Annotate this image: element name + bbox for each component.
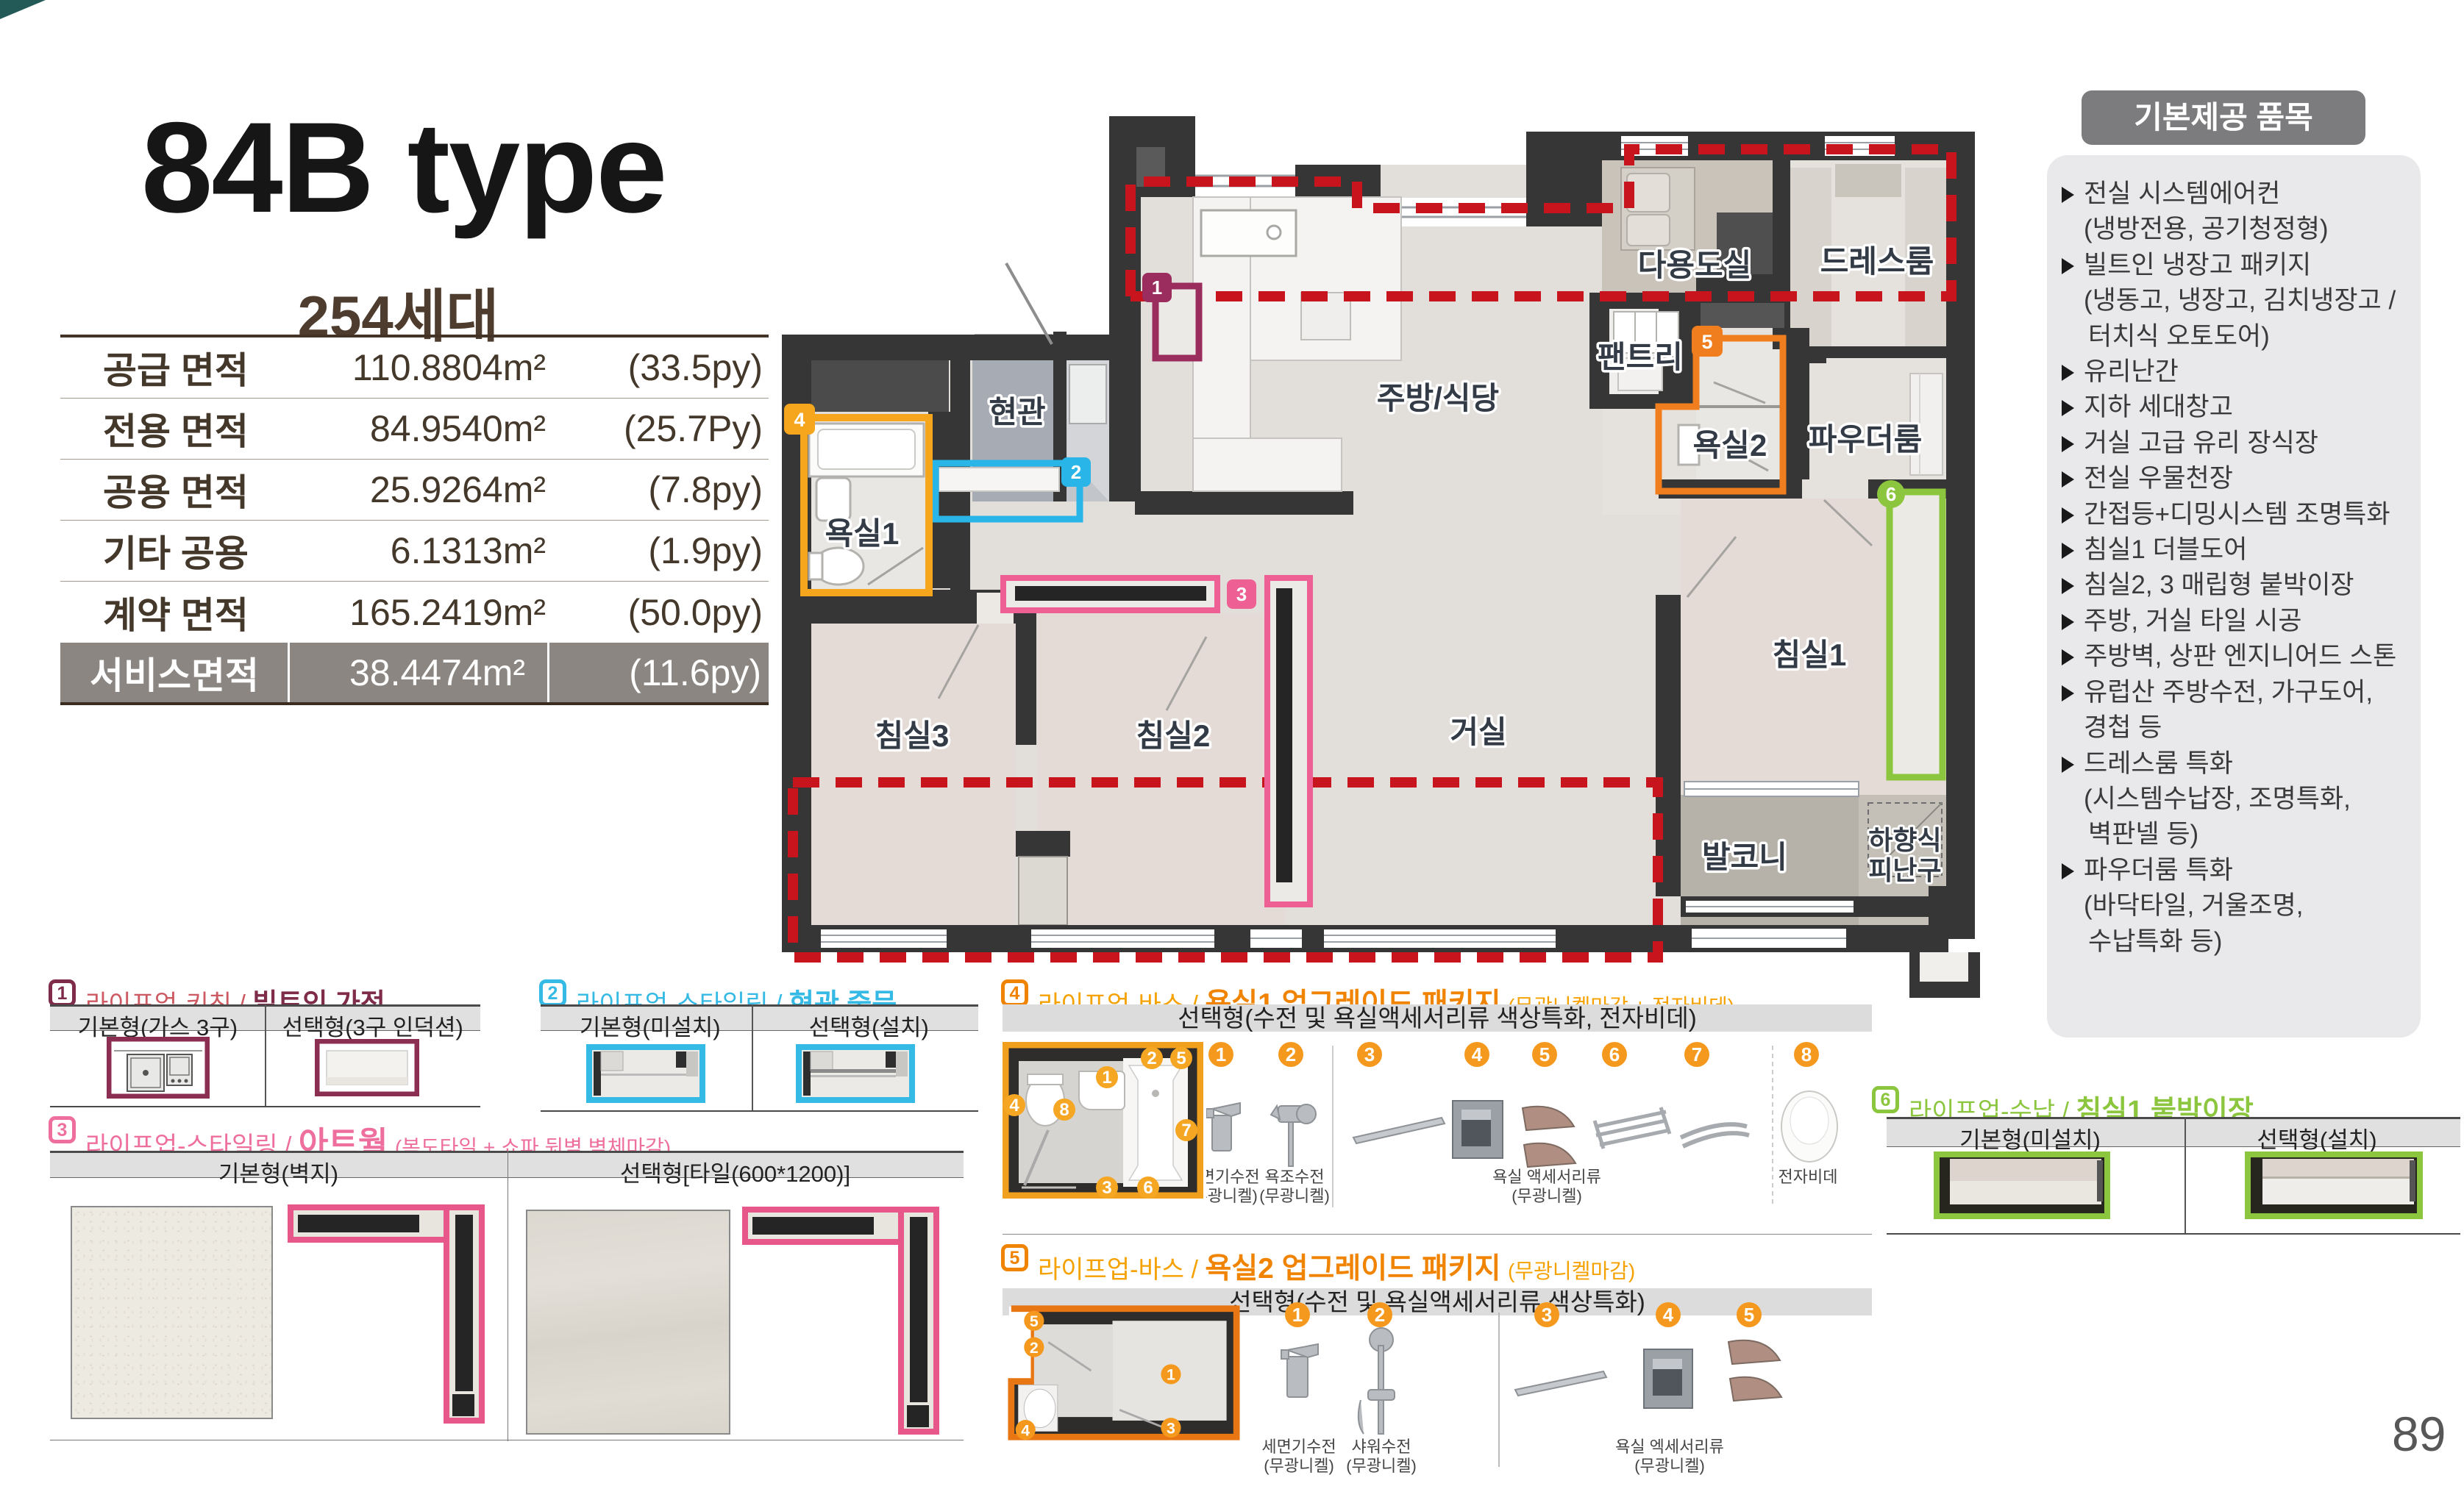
svg-text:세면기수전: 세면기수전 — [1261, 1438, 1336, 1456]
svg-text:침실3: 침실3 — [875, 718, 950, 753]
svg-text:(무광니켈): (무광니켈) — [1511, 1187, 1582, 1205]
svg-text:욕실 엑세서리류: 욕실 엑세서리류 — [1615, 1438, 1724, 1456]
svg-text:세면기수전: 세면기수전 — [1206, 1168, 1260, 1186]
svg-text:6: 6 — [1609, 1043, 1620, 1065]
svg-text:파우더룸: 파우더룸 — [1809, 422, 1923, 457]
svg-text:4: 4 — [1021, 1421, 1030, 1439]
svg-text:(무광니켈): (무광니켈) — [1264, 1457, 1334, 1475]
svg-text:(무광니켈): (무광니켈) — [1634, 1457, 1705, 1475]
svg-text:침실1: 침실1 — [1773, 638, 1847, 672]
svg-text:4: 4 — [1663, 1304, 1674, 1326]
svg-text:전자비데: 전자비데 — [1778, 1168, 1838, 1186]
svg-text:주방/식당: 주방/식당 — [1377, 381, 1499, 415]
svg-text:침실2: 침실2 — [1136, 718, 1211, 753]
svg-text:3: 3 — [1102, 1178, 1111, 1198]
svg-text:3: 3 — [1364, 1043, 1375, 1065]
svg-text:하향식: 하향식 — [1868, 825, 1941, 855]
svg-text:6: 6 — [1886, 483, 1896, 505]
svg-text:욕조수전: 욕조수전 — [1265, 1168, 1325, 1186]
svg-text:4: 4 — [1009, 1096, 1019, 1115]
svg-text:피난구: 피난구 — [1868, 855, 1941, 885]
svg-text:2: 2 — [1375, 1304, 1385, 1326]
svg-text:3: 3 — [1236, 583, 1247, 605]
svg-text:1: 1 — [1292, 1304, 1303, 1326]
svg-text:현관: 현관 — [989, 395, 1045, 429]
svg-text:(무광니켈): (무광니켈) — [1346, 1457, 1417, 1475]
svg-text:욕실1: 욕실1 — [825, 516, 900, 551]
svg-text:8: 8 — [1059, 1100, 1069, 1120]
svg-text:4: 4 — [1472, 1043, 1483, 1065]
svg-text:욕실2: 욕실2 — [1693, 428, 1767, 463]
svg-text:5: 5 — [1701, 331, 1712, 353]
svg-text:5: 5 — [1030, 1313, 1039, 1330]
svg-text:2: 2 — [1147, 1049, 1156, 1068]
svg-text:거실: 거실 — [1450, 715, 1506, 749]
svg-text:드레스룸: 드레스룸 — [1820, 244, 1934, 279]
svg-text:6: 6 — [1143, 1178, 1153, 1198]
svg-text:(무광니켈): (무광니켈) — [1206, 1187, 1258, 1205]
svg-text:다용도실: 다용도실 — [1638, 248, 1752, 282]
svg-text:1: 1 — [1102, 1068, 1111, 1088]
svg-text:2: 2 — [1030, 1339, 1039, 1357]
svg-text:5: 5 — [1539, 1043, 1550, 1065]
svg-text:발코니: 발코니 — [1702, 840, 1787, 874]
svg-text:욕실 액세서리류: 욕실 액세서리류 — [1492, 1168, 1601, 1186]
svg-text:팬트리: 팬트리 — [1598, 340, 1683, 374]
svg-text:1: 1 — [1216, 1043, 1226, 1065]
svg-text:7: 7 — [1181, 1121, 1191, 1140]
svg-text:(무광니켈): (무광니켈) — [1259, 1187, 1330, 1205]
svg-text:7: 7 — [1692, 1043, 1702, 1065]
svg-text:8: 8 — [1801, 1043, 1812, 1065]
svg-text:3: 3 — [1542, 1304, 1552, 1326]
svg-text:2: 2 — [1071, 461, 1081, 483]
svg-text:5: 5 — [1176, 1049, 1186, 1068]
svg-text:1: 1 — [1152, 276, 1162, 299]
svg-text:5: 5 — [1744, 1304, 1754, 1326]
svg-text:4: 4 — [794, 409, 805, 431]
svg-text:1: 1 — [1167, 1366, 1175, 1384]
svg-text:3: 3 — [1167, 1419, 1175, 1437]
svg-text:샤워수전: 샤워수전 — [1352, 1438, 1411, 1456]
svg-text:2: 2 — [1286, 1043, 1296, 1065]
